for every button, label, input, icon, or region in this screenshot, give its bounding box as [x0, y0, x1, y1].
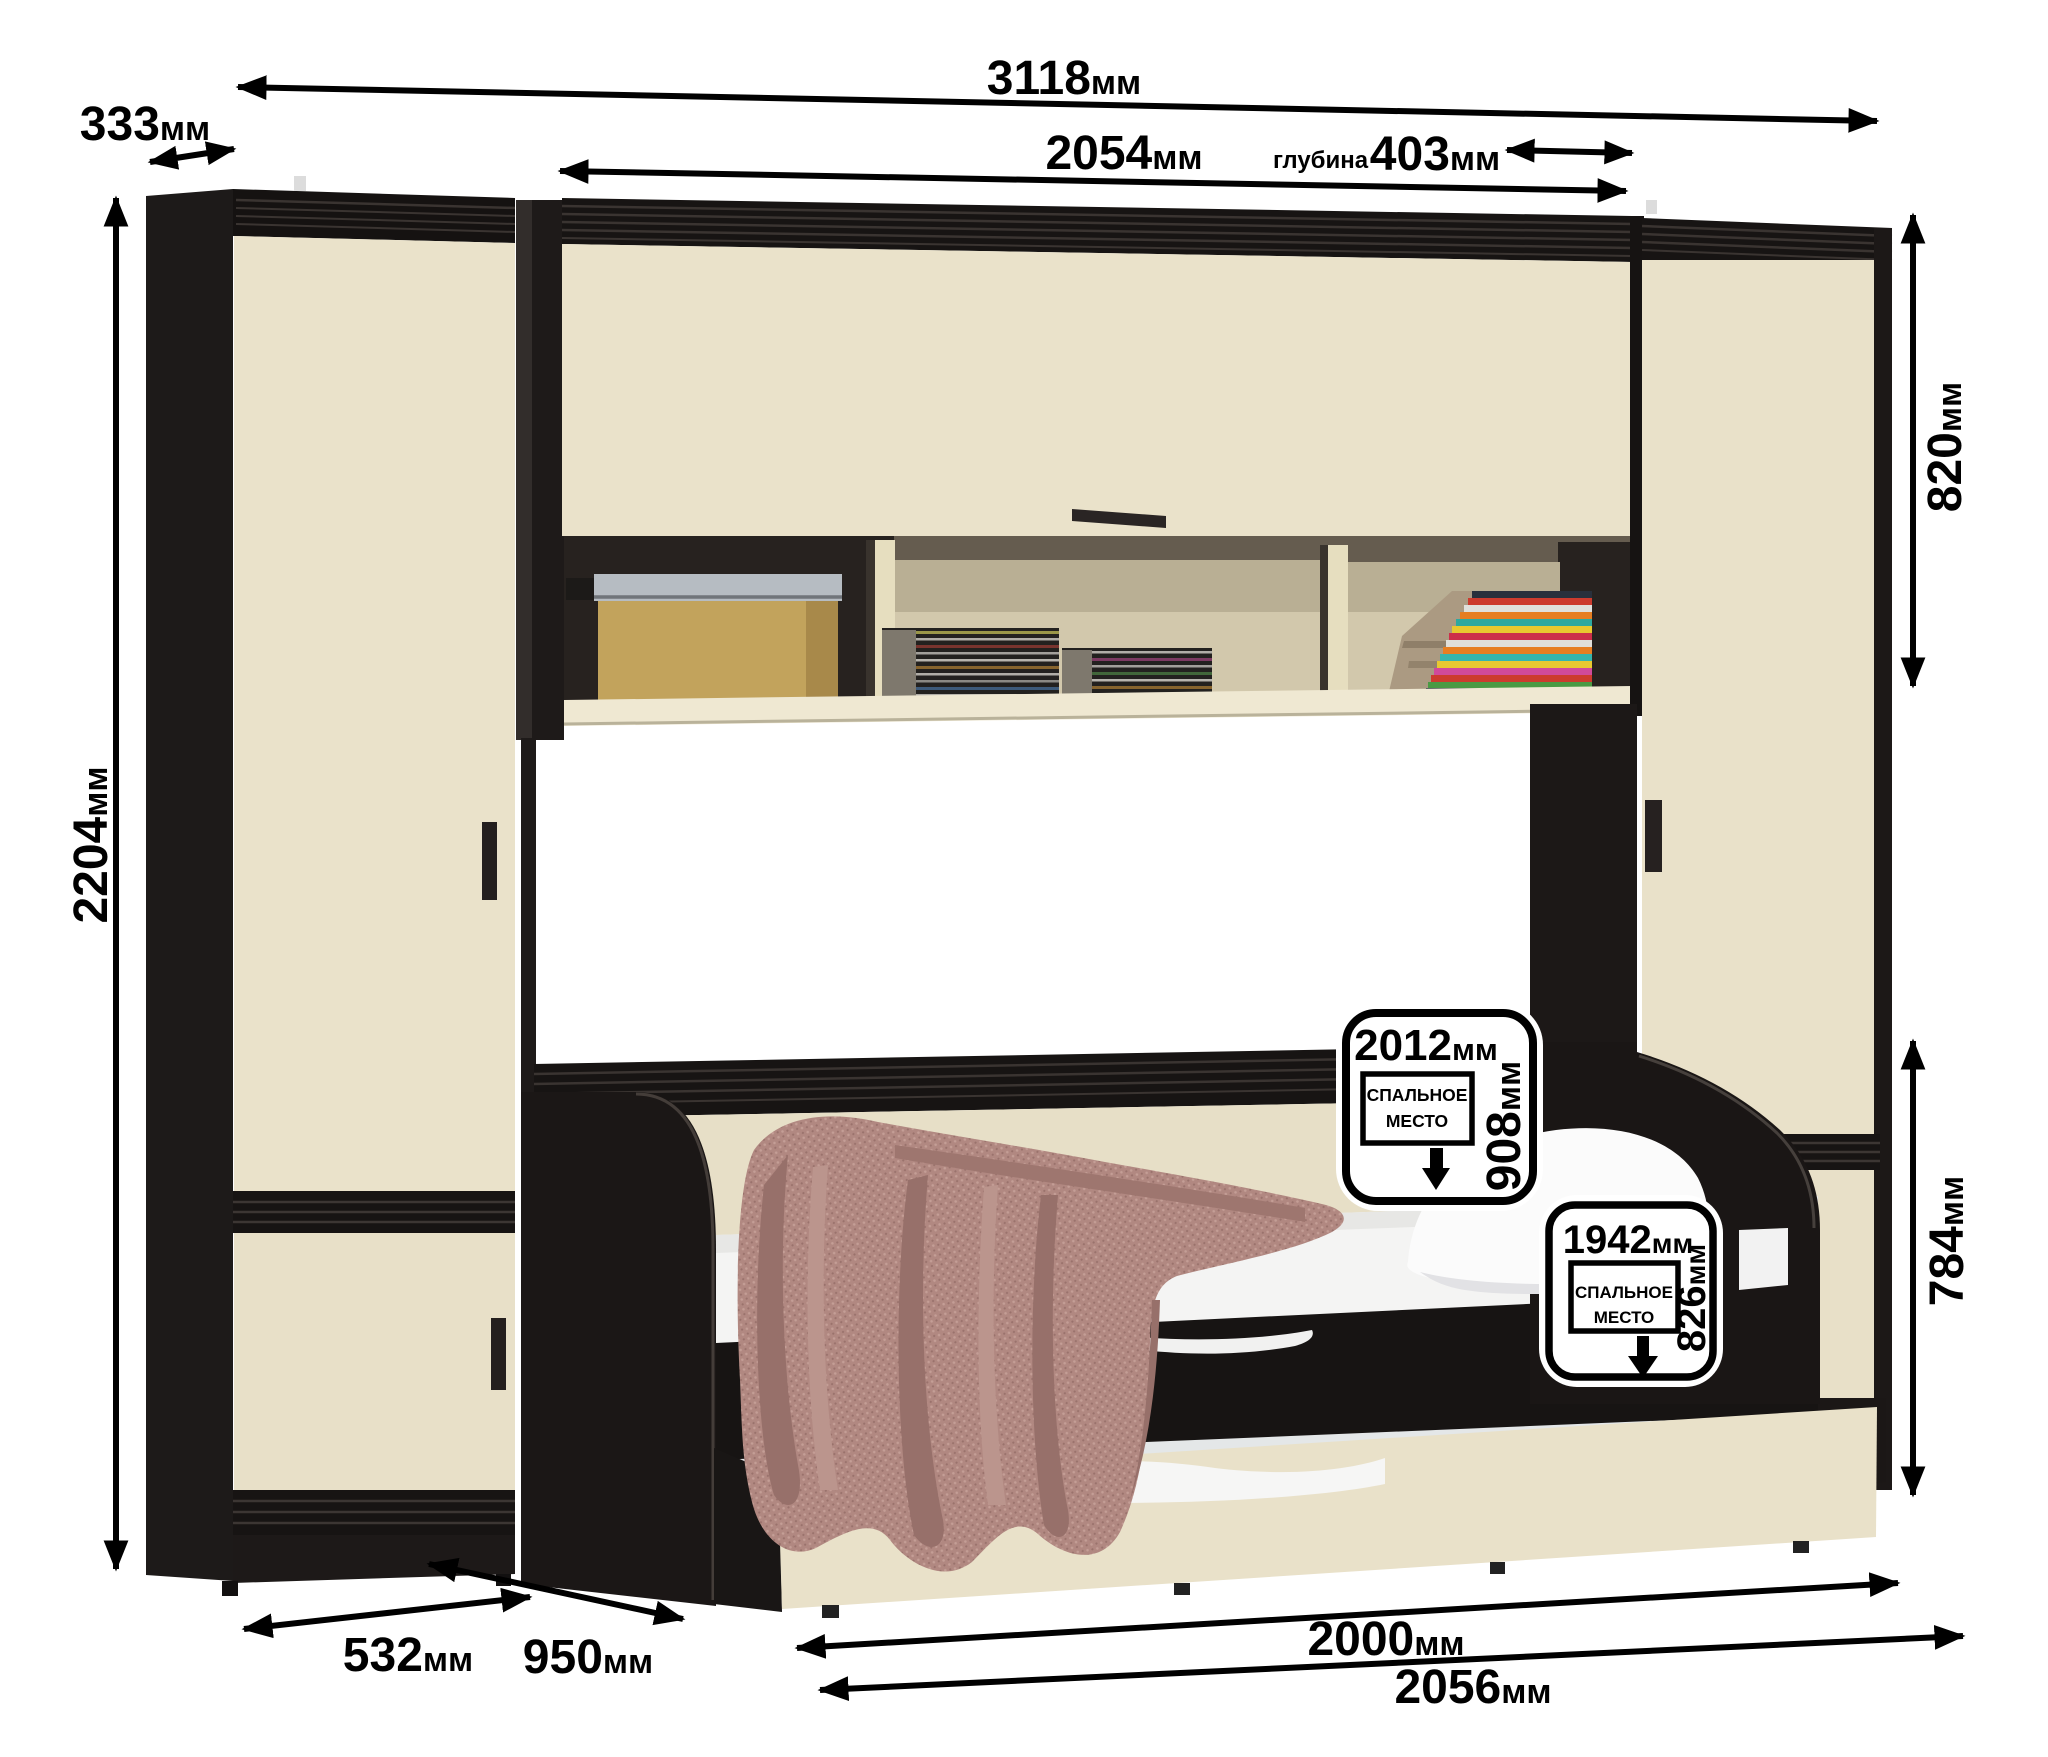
svg-text:МЕСТО: МЕСТО	[1594, 1308, 1655, 1327]
svg-text:СПАЛЬНОЕ: СПАЛЬНОЕ	[1575, 1283, 1673, 1302]
svg-text:глубина: глубина	[1273, 147, 1369, 174]
svg-text:МЕСТО: МЕСТО	[1386, 1111, 1448, 1131]
svg-text:СПАЛЬНОЕ: СПАЛЬНОЕ	[1367, 1085, 1468, 1105]
